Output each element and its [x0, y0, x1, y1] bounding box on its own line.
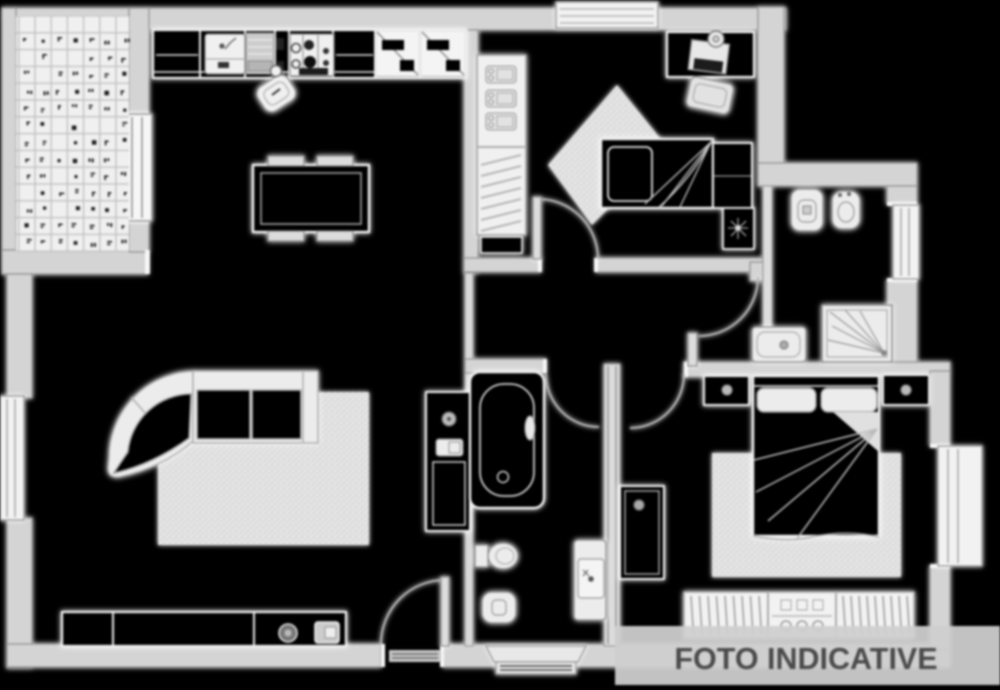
svg-text:FOTO INDICATIVE: FOTO INDICATIVE [674, 642, 937, 676]
